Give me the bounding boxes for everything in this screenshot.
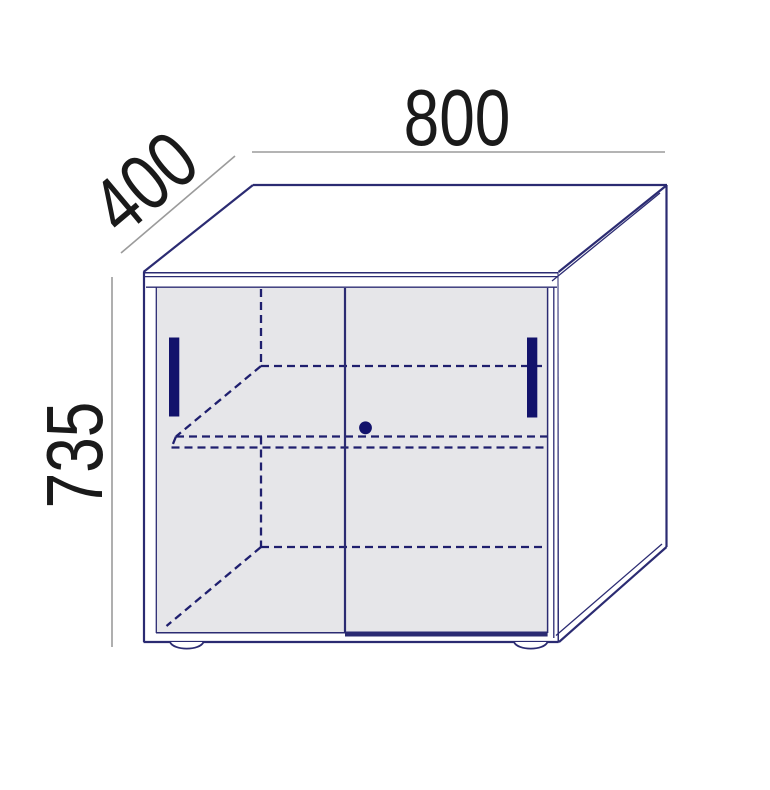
door-handle-left — [169, 338, 179, 417]
plinth-foot-left — [170, 642, 204, 649]
dimension-label-height: 735 — [30, 402, 119, 509]
dimension-label-width: 800 — [404, 73, 511, 162]
front-face — [144, 272, 559, 643]
door-handle-right — [527, 338, 537, 418]
lock-knob — [359, 421, 372, 434]
left-sliding-door — [157, 288, 346, 633]
cabinet-technical-drawing: 800 400 735 — [0, 0, 770, 790]
drawing-svg: 800 400 735 — [0, 0, 770, 790]
plinth-foot-right — [514, 642, 548, 649]
right-door-bottom-edge — [345, 632, 548, 637]
right-sliding-door — [345, 288, 548, 634]
